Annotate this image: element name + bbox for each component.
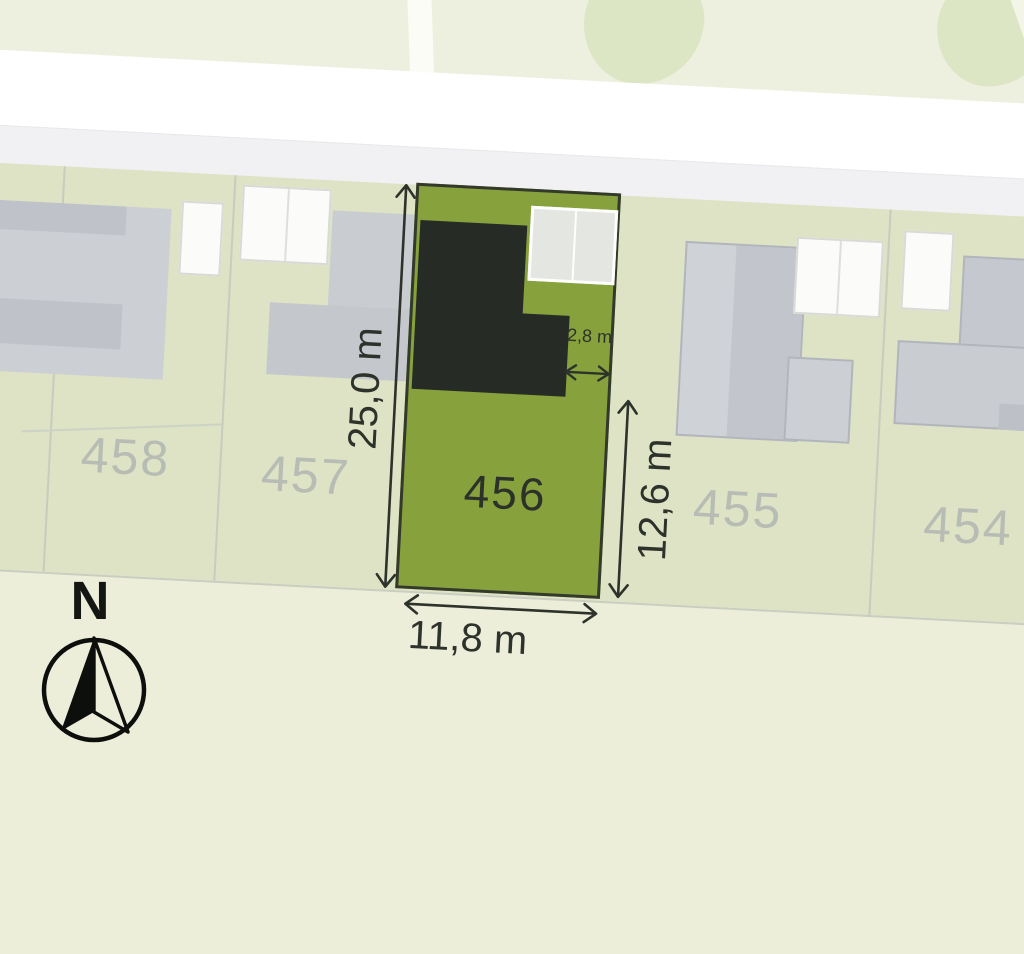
- plot-label-455: 455: [656, 478, 819, 541]
- building-455-annex: [783, 356, 853, 443]
- dimension-arrow-side-gap: [562, 357, 613, 390]
- plot-label-454: 454: [887, 495, 1024, 558]
- garage-457: [239, 185, 332, 266]
- garage-divider: [836, 241, 842, 314]
- north-label: N: [52, 570, 128, 632]
- tree-icon: [581, 0, 707, 87]
- dimension-label-right-depth: 12,6 m: [629, 419, 681, 581]
- site-plan-map: 458 457 455 454 456 25,0 m 12,6 m 11,8 m…: [0, 0, 1024, 952]
- garage-divider: [572, 211, 578, 280]
- tree-icon: [934, 0, 1024, 90]
- building-458-roof: [0, 297, 123, 349]
- compass-icon: [36, 632, 152, 748]
- building-454-roof: [998, 404, 1024, 433]
- garage-454: [900, 230, 954, 312]
- garage-458: [178, 200, 224, 276]
- dimension-label-left-depth: 25,0 m: [339, 307, 391, 469]
- garage-456: [527, 206, 618, 285]
- plot-label-458: 458: [44, 426, 207, 489]
- plot-label-456: 456: [419, 461, 592, 524]
- building-454: [958, 255, 1024, 356]
- garage-455: [793, 237, 884, 318]
- garage-divider: [284, 189, 290, 261]
- planned-building: [412, 220, 528, 394]
